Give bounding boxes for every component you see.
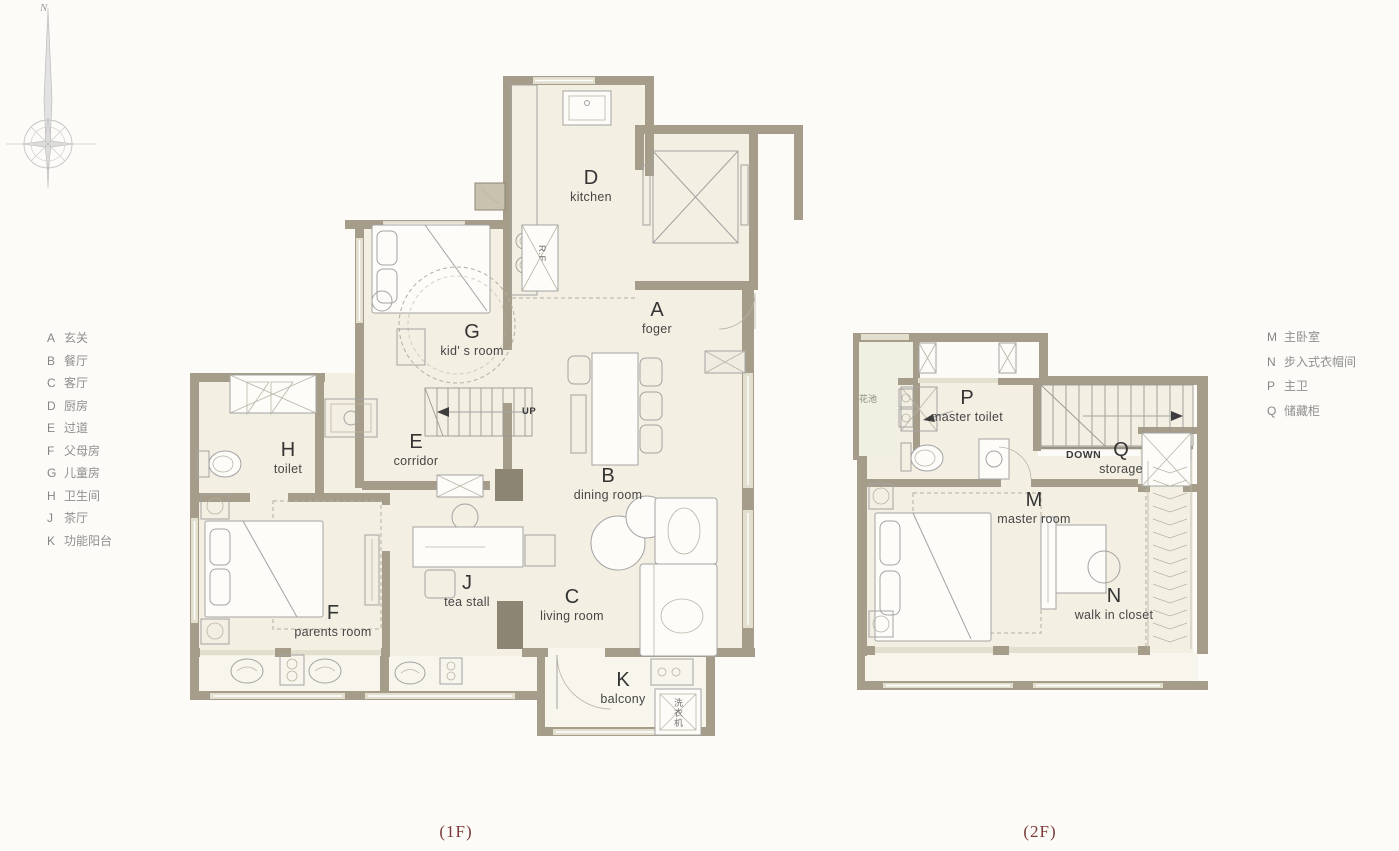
legend-item: H卫生间 — [47, 487, 112, 510]
fridge-label: R.F — [536, 245, 547, 262]
legend-item: A玄关 — [47, 329, 112, 352]
stairs-up-label: UP — [522, 406, 536, 417]
legend-item: B餐厅 — [47, 352, 112, 375]
caption-1f: (1F) — [439, 822, 472, 842]
legend-item: P主卫 — [1267, 377, 1356, 402]
floorplan-1f — [185, 73, 805, 745]
washing-machine-label: 洗衣机 — [672, 698, 685, 728]
legend-item: M主卧室 — [1267, 328, 1356, 353]
legend-item: C客厅 — [47, 374, 112, 397]
floorplan-page: N A玄关 B餐厅 C客厅 D厨房 E过道 F父母房 G儿童房 H卫生间 J茶厅… — [0, 0, 1399, 851]
legend-item: G儿童房 — [47, 464, 112, 487]
legend-item: N步入式衣帽间 — [1267, 353, 1356, 378]
caption-2f: (2F) — [1023, 822, 1056, 842]
legend-item: Q储藏柜 — [1267, 402, 1356, 427]
planter-label: 花池 — [859, 392, 877, 405]
legend-item: E过道 — [47, 419, 112, 442]
storage-closet-icon — [1142, 433, 1191, 486]
legend-item: K功能阳台 — [47, 532, 112, 555]
entry-closet-icon — [230, 375, 316, 414]
legend-item: D厨房 — [47, 397, 112, 420]
vanity-icon — [979, 439, 1009, 479]
legend-left: A玄关 B餐厅 C客厅 D厨房 E过道 F父母房 G儿童房 H卫生间 J茶厅 K… — [47, 329, 112, 554]
window-seat-icon — [705, 351, 745, 373]
legend-right: M主卧室 N步入式衣帽间 P主卫 Q储藏柜 — [1267, 328, 1356, 426]
compass-rose-icon — [6, 0, 98, 200]
legend-item: J茶厅 — [47, 509, 112, 532]
floorplan-2f — [853, 331, 1228, 696]
legend-item: F父母房 — [47, 442, 112, 465]
compass-north-label: N — [40, 2, 47, 14]
stairs-down-label: DOWN — [1066, 449, 1101, 461]
